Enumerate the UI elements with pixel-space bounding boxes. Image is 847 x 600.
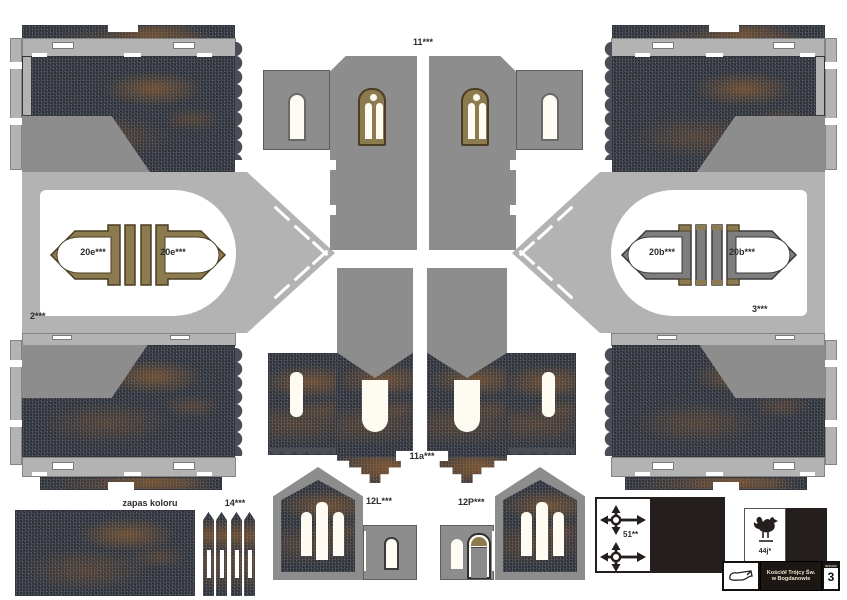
part-label: 14*** — [212, 498, 258, 508]
gothic-window — [461, 88, 489, 146]
glue-slot — [773, 462, 795, 470]
scalloped-edge — [270, 448, 335, 455]
arched-opening — [454, 380, 480, 432]
cut-notch — [510, 205, 516, 215]
door-lunette — [471, 537, 487, 546]
scalloped-edge — [235, 348, 243, 456]
window-light — [376, 103, 384, 139]
cut-slit — [706, 53, 723, 57]
lancet-window — [536, 502, 548, 560]
scalloped-edge — [604, 42, 612, 160]
part-label: 11*** — [400, 37, 446, 47]
cut-slit — [706, 472, 723, 476]
crosses-box: 51** — [595, 497, 652, 573]
lancet-window — [521, 512, 532, 556]
nave-wall-right — [429, 56, 516, 250]
publisher-logo-cell — [722, 561, 760, 591]
scalloped-edge — [235, 42, 243, 160]
cut-notch — [330, 160, 336, 170]
door — [467, 533, 491, 579]
gothic-window — [358, 88, 386, 146]
part-label: 12P*** — [458, 497, 485, 507]
arched-window — [288, 93, 306, 141]
publisher-title-line2: w Bogdanowie — [772, 576, 811, 583]
cut-notch — [330, 205, 336, 215]
cut-slit — [220, 550, 224, 578]
glue-tab-bar — [825, 38, 837, 170]
glue-slot — [773, 42, 795, 49]
scalloped-edge — [604, 348, 612, 456]
window-light — [479, 103, 487, 139]
oculus — [370, 94, 377, 101]
slot-window — [290, 372, 303, 417]
cut-notch — [10, 420, 22, 427]
edge-strip — [23, 57, 31, 115]
glue-slot — [173, 42, 195, 49]
part-label: 2*** — [30, 311, 46, 321]
cut-slit — [197, 53, 212, 57]
cut-slit — [197, 472, 212, 476]
part-label: 20b*** — [717, 247, 767, 257]
cut-slit — [124, 53, 141, 57]
cut-notch — [825, 420, 837, 427]
part-label: 11a*** — [396, 451, 448, 461]
black-paint-block — [786, 508, 827, 563]
door-leaf — [471, 547, 487, 578]
glue-slot — [652, 42, 674, 49]
part-label: 20e*** — [68, 247, 118, 257]
cut-notch — [713, 482, 739, 490]
cut-notch — [10, 118, 22, 125]
part-label: 44j* — [745, 548, 785, 555]
arched-window — [450, 538, 464, 570]
cut-slit — [492, 531, 494, 571]
edge-strip — [816, 57, 824, 115]
cut-slit — [364, 531, 366, 571]
oculus — [473, 94, 480, 101]
cut-notch — [825, 360, 837, 367]
part-label: 12L*** — [366, 496, 392, 506]
lancet-window — [316, 502, 328, 560]
arched-window — [541, 93, 559, 141]
cut-slit — [800, 472, 815, 476]
window-light — [468, 103, 476, 139]
cut-slit — [248, 550, 252, 578]
publisher-logo-icon — [727, 568, 755, 584]
publisher-imprint: Kościół Trójcy Św. w Bogdanowie arkusz 3 — [722, 561, 840, 591]
papercraft-sheet: 20e*** 20e*** 2*** — [0, 0, 847, 600]
cut-notch — [825, 118, 837, 125]
cut-slit — [635, 472, 650, 476]
cut-notch — [10, 62, 22, 69]
black-paint-block — [652, 497, 725, 573]
sheet-number-cell: arkusz 3 — [822, 561, 840, 591]
cut-slit — [124, 472, 141, 476]
weathervane-cross-icon — [600, 542, 646, 572]
cut-slit — [235, 550, 239, 578]
cut-notch — [510, 160, 516, 170]
part-label: 20b*** — [637, 247, 687, 257]
cut-notch — [108, 482, 134, 490]
rooster-box: 44j* — [744, 508, 786, 563]
scalloped-edge — [509, 448, 574, 455]
glue-slot — [170, 335, 190, 340]
cut-slit — [207, 550, 211, 578]
cut-slit — [800, 53, 815, 57]
glue-tab-bar — [10, 38, 22, 170]
lancet-window — [333, 512, 344, 556]
glue-slot — [52, 42, 74, 49]
glue-tab-bar — [825, 340, 837, 465]
color-spare-label: zapas koloru — [103, 498, 197, 508]
glue-slot — [52, 335, 72, 340]
arched-opening — [362, 380, 388, 432]
cut-slit — [32, 53, 47, 57]
cut-notch — [709, 24, 739, 32]
sheet-number: 3 — [828, 568, 835, 586]
cut-notch — [825, 62, 837, 69]
cut-notch — [10, 360, 22, 367]
glue-slot — [775, 335, 795, 340]
glue-slot — [52, 462, 74, 470]
lancet-window — [553, 512, 564, 556]
window-light — [365, 103, 373, 139]
weathercock-rooster-icon — [752, 514, 779, 546]
glue-tab-bar — [10, 340, 22, 465]
slot-window — [542, 372, 555, 417]
part-label: 20e*** — [148, 247, 198, 257]
glue-slot — [652, 462, 674, 470]
glue-slot — [173, 462, 195, 470]
part-label: 51** — [623, 530, 638, 539]
publisher-title: Kościół Trójcy Św. w Bogdanowie — [760, 561, 822, 591]
lancet-window — [301, 512, 312, 556]
cut-slit — [635, 53, 650, 57]
color-spare-swatch — [15, 510, 195, 596]
nave-wall-left — [330, 56, 417, 250]
cut-slit — [32, 472, 47, 476]
arched-window — [384, 537, 399, 570]
glue-slot — [657, 335, 677, 340]
part-label: 3*** — [752, 304, 768, 314]
cut-notch — [108, 24, 138, 32]
